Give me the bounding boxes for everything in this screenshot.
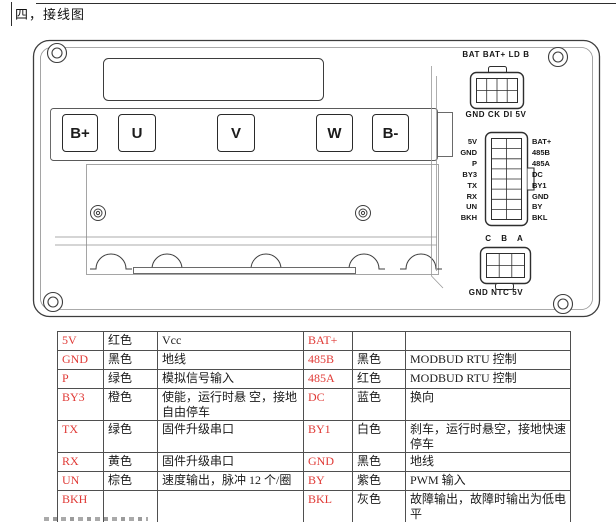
wire-color-cell: 绿色 [104, 421, 158, 453]
function-desc-cell: MODBUD RTU 控制 [406, 370, 571, 389]
pin-name-cell: 5V [58, 332, 104, 351]
pin-name-cell: TX [58, 421, 104, 453]
wire-color-cell: 黑色 [104, 351, 158, 370]
function-desc-cell: 换向 [406, 389, 571, 421]
function-desc-cell: 速度输出，脉冲 12 个/圈 [158, 472, 304, 491]
wiring-table-row: BY3 橙色 使能，运行时悬 空，接地自由停车 DC 蓝色 换向 [58, 389, 571, 421]
wire-color-cell: 红色 [353, 370, 406, 389]
wire-color-cell: 绿色 [104, 370, 158, 389]
wire-color-cell [353, 332, 406, 351]
function-desc-cell [406, 332, 571, 351]
pin-name-cell: BY [304, 472, 353, 491]
header-rule [36, 3, 616, 4]
pin-name-cell: UN [58, 472, 104, 491]
wire-color-cell: 灰色 [353, 491, 406, 522]
pin-name-cell: BKL [304, 491, 353, 522]
pin-name-cell: BY3 [58, 389, 104, 421]
function-desc-cell: 故障输出，故障时输出为低电平 [406, 491, 571, 522]
io-connector [486, 133, 535, 226]
function-desc-cell: MODBUD RTU 控制 [406, 351, 571, 370]
wire-color-cell: 蓝色 [353, 389, 406, 421]
function-desc-cell: 刹车，运行时悬空，接地快速停车 [406, 421, 571, 453]
clamp-bar [134, 268, 356, 274]
pin-name-cell: BAT+ [304, 332, 353, 351]
hall-sensor-connector [481, 248, 531, 290]
function-desc-cell: 地线 [406, 453, 571, 472]
function-desc-cell: Vcc [158, 332, 304, 351]
panel-side-tab [438, 113, 453, 157]
wire-color-cell: 紫色 [353, 472, 406, 491]
pin-name-cell: 485B [304, 351, 353, 370]
function-desc-cell: 地线 [158, 351, 304, 370]
wiring-table-row: P 绿色 模拟信号输入 485A 红色 MODBUD RTU 控制 [58, 370, 571, 389]
function-desc-cell: PWM 输入 [406, 472, 571, 491]
wire-color-cell: 黄色 [104, 453, 158, 472]
pin-name-cell: 485A [304, 370, 353, 389]
function-desc-cell: 固件升级串口 [158, 421, 304, 453]
wire-color-cell: 红色 [104, 332, 158, 351]
wiring-table-row: RX 黄色 固件升级串口 GND 黑色 地线 [58, 453, 571, 472]
pin-name-cell: DC [304, 389, 353, 421]
manual-page: 四，接线图 [0, 0, 616, 522]
pin-name-cell: P [58, 370, 104, 389]
wire-color-cell: 橙色 [104, 389, 158, 421]
wiring-table-row: UN 棕色 速度输出，脉冲 12 个/圈 BY 紫色 PWM 输入 [58, 472, 571, 491]
wire-color-cell: 黑色 [353, 453, 406, 472]
function-desc-cell: 使能，运行时悬 空，接地自由停车 [158, 389, 304, 421]
section-title: 四，接线图 [15, 4, 85, 23]
power-signal-connector [471, 67, 524, 109]
function-desc-cell: 固件升级串口 [158, 453, 304, 472]
function-desc-cell [158, 491, 304, 522]
pin-name-cell: RX [58, 453, 104, 472]
pin-name-cell: BY1 [304, 421, 353, 453]
label-recess [104, 59, 324, 101]
wire-color-cell: 棕色 [104, 472, 158, 491]
wire-color-cell: 白色 [353, 421, 406, 453]
terminal-panel [51, 109, 438, 161]
wiring-table-row: GND 黑色 地线 485B 黑色 MODBUD RTU 控制 [58, 351, 571, 370]
pin-name-cell: GND [58, 351, 104, 370]
wiring-table: 5V 红色 Vcc BAT+ GND 黑色 地线 485B 黑色 MODBUD … [57, 331, 571, 522]
wiring-table-row: 5V 红色 Vcc BAT+ [58, 332, 571, 351]
controller-diagram [30, 36, 610, 326]
wiring-table-row: TX 绿色 固件升级串口 BY1 白色 刹车，运行时悬空，接地快速停车 [58, 421, 571, 453]
clipped-text-fragment [44, 517, 148, 521]
header-left-border [11, 2, 12, 26]
wire-color-cell: 黑色 [353, 351, 406, 370]
pin-name-cell: GND [304, 453, 353, 472]
function-desc-cell: 模拟信号输入 [158, 370, 304, 389]
